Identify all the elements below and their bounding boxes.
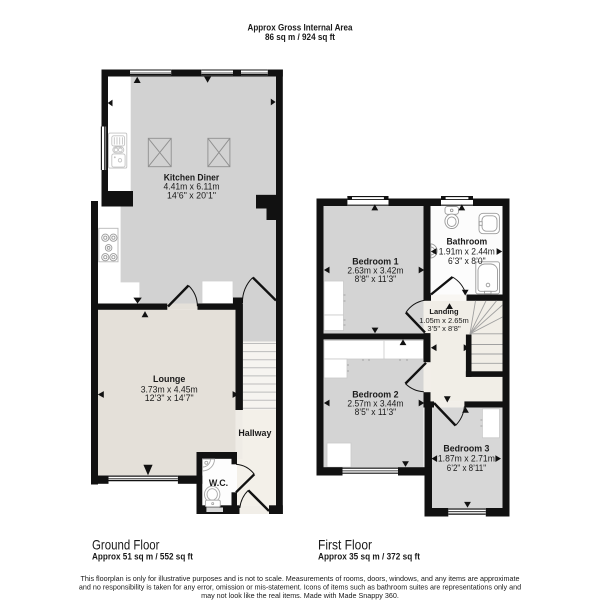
svg-text:Lounge: Lounge [153,374,185,385]
svg-text:Hallway: Hallway [238,428,272,439]
svg-text:14’6" x 20’1": 14’6" x 20’1" [167,191,216,202]
svg-text:Landing: Landing [429,307,459,316]
svg-text:6’3" x 8’0": 6’3" x 8’0" [448,256,486,267]
svg-text:6’2" x 8’11": 6’2" x 8’11" [447,463,486,474]
svg-text:Approx 51 sq m / 552 sq ft: Approx 51 sq m / 552 sq ft [92,552,193,562]
svg-text:8’5" x 11’3": 8’5" x 11’3" [355,407,397,418]
svg-text:12’3" x 14’7": 12’3" x 14’7" [145,393,194,404]
svg-text:Ground Floor: Ground Floor [92,537,160,553]
svg-text:Approx 35 sq m / 372 sq ft: Approx 35 sq m / 372 sq ft [318,552,420,562]
svg-text:86 sq m / 924 sq ft: 86 sq m / 924 sq ft [265,32,335,42]
svg-text:W.C.: W.C. [209,478,228,489]
svg-text:First Floor: First Floor [318,537,372,553]
svg-text:may not look like the real ite: may not look like the real items. Made w… [201,591,399,600]
svg-text:3’5" x 8’8": 3’5" x 8’8" [427,324,461,333]
svg-text:8’8" x 11’3": 8’8" x 11’3" [355,274,397,285]
